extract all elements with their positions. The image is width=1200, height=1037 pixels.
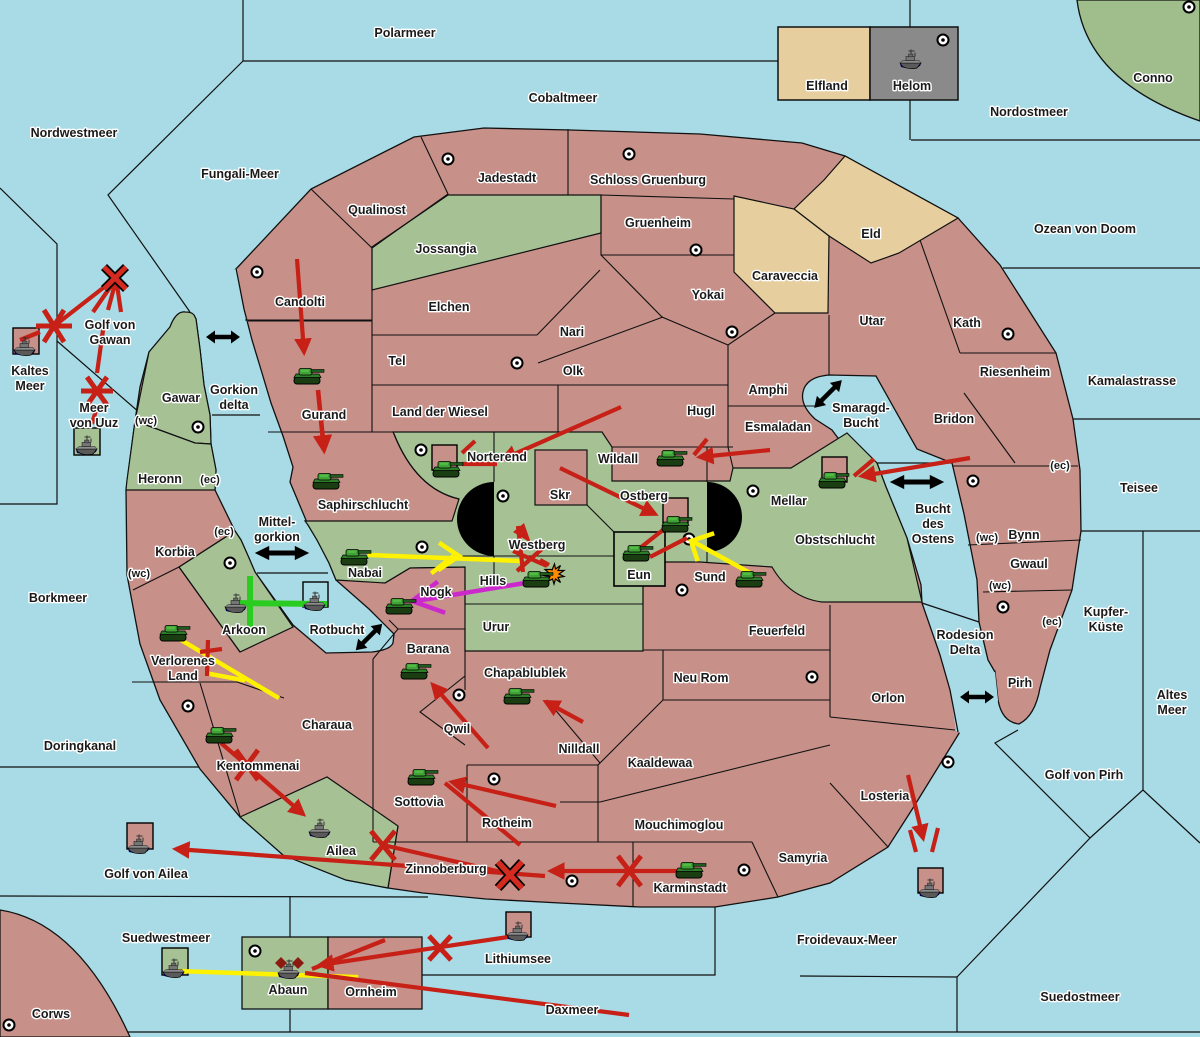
svg-text:Delta: Delta — [950, 643, 982, 657]
svg-text:Gruenheim: Gruenheim — [625, 216, 691, 230]
svg-text:Conno: Conno — [1133, 71, 1173, 85]
svg-text:Gwaul: Gwaul — [1010, 557, 1048, 571]
svg-text:Qualinost: Qualinost — [348, 203, 406, 217]
svg-text:Candolti: Candolti — [275, 295, 325, 309]
svg-text:Kath: Kath — [953, 316, 981, 330]
svg-text:Wildall: Wildall — [598, 452, 638, 466]
svg-text:Bucht: Bucht — [843, 416, 879, 430]
svg-text:Lithiumsee: Lithiumsee — [485, 952, 551, 966]
svg-text:delta: delta — [219, 398, 249, 412]
svg-text:Nordwestmeer: Nordwestmeer — [31, 126, 118, 140]
svg-text:Heronn: Heronn — [138, 472, 182, 486]
svg-text:Fungali-Meer: Fungali-Meer — [201, 167, 279, 181]
svg-text:Samyria: Samyria — [779, 851, 829, 865]
svg-text:Helom: Helom — [893, 79, 931, 93]
svg-text:Polarmeer: Polarmeer — [374, 26, 435, 40]
svg-text:Nari: Nari — [560, 325, 584, 339]
svg-text:Mouchimoglou: Mouchimoglou — [635, 818, 724, 832]
svg-text:Pirh: Pirh — [1008, 676, 1032, 690]
svg-text:(ec): (ec) — [200, 474, 220, 486]
svg-text:Mellar: Mellar — [771, 494, 807, 508]
svg-text:Froidevaux-Meer: Froidevaux-Meer — [797, 933, 897, 947]
svg-text:Esmaladan: Esmaladan — [745, 420, 811, 434]
svg-text:Elchen: Elchen — [429, 300, 470, 314]
svg-text:Gorkion: Gorkion — [210, 383, 258, 397]
svg-text:(ec): (ec) — [214, 526, 234, 538]
svg-text:Hugl: Hugl — [687, 404, 715, 418]
svg-text:Kaltes: Kaltes — [11, 364, 49, 378]
svg-text:Neu Rom: Neu Rom — [674, 671, 729, 685]
svg-text:Eun: Eun — [627, 568, 651, 582]
svg-text:Nabai: Nabai — [348, 566, 382, 580]
svg-text:Gawan: Gawan — [90, 333, 131, 347]
svg-text:Teisee: Teisee — [1120, 481, 1158, 495]
svg-text:Gurand: Gurand — [302, 408, 346, 422]
svg-text:Meer: Meer — [79, 401, 108, 415]
svg-text:Bynn: Bynn — [1008, 528, 1039, 542]
svg-text:von Uuz: von Uuz — [70, 416, 119, 430]
svg-text:Meer: Meer — [15, 379, 44, 393]
svg-text:Elfland: Elfland — [806, 79, 848, 93]
svg-text:Karminstadt: Karminstadt — [654, 881, 728, 895]
svg-text:Urur: Urur — [483, 620, 510, 634]
svg-text:Mittel-: Mittel- — [259, 515, 296, 529]
svg-text:Ailea: Ailea — [326, 844, 357, 858]
svg-text:Meer: Meer — [1157, 703, 1186, 717]
svg-text:Borkmeer: Borkmeer — [29, 591, 87, 605]
svg-text:Golf von Ailea: Golf von Ailea — [104, 867, 189, 881]
svg-text:(ec): (ec) — [1042, 616, 1062, 628]
svg-text:Losteria: Losteria — [861, 789, 911, 803]
svg-text:Ostberg: Ostberg — [620, 489, 668, 503]
svg-text:Suedwestmeer: Suedwestmeer — [122, 931, 210, 945]
svg-text:Zinnoberburg: Zinnoberburg — [405, 862, 486, 876]
svg-text:Chapablublek: Chapablublek — [484, 666, 566, 680]
svg-text:Sund: Sund — [694, 570, 725, 584]
svg-text:Tel: Tel — [388, 354, 405, 368]
svg-text:Yokai: Yokai — [692, 288, 724, 302]
svg-text:Charaua: Charaua — [302, 718, 353, 732]
svg-text:Smaragd-: Smaragd- — [832, 401, 890, 415]
svg-text:Olk: Olk — [563, 364, 583, 378]
svg-text:Obstschlucht: Obstschlucht — [795, 533, 876, 547]
svg-text:Kamalastrasse: Kamalastrasse — [1088, 374, 1176, 388]
svg-text:des: des — [922, 517, 944, 531]
svg-text:Bridon: Bridon — [934, 412, 974, 426]
svg-text:Corws: Corws — [32, 1007, 70, 1021]
svg-text:Westberg: Westberg — [509, 538, 566, 552]
svg-text:Skr: Skr — [550, 488, 570, 502]
svg-text:Bucht: Bucht — [915, 502, 951, 516]
svg-text:Kupfer-: Kupfer- — [1084, 605, 1128, 619]
svg-text:Nogk: Nogk — [420, 585, 451, 599]
svg-text:gorkion: gorkion — [254, 530, 300, 544]
svg-text:(wc): (wc) — [989, 580, 1011, 592]
svg-text:Daxmeer: Daxmeer — [546, 1003, 599, 1017]
svg-text:Utar: Utar — [859, 314, 884, 328]
svg-text:Saphirschlucht: Saphirschlucht — [318, 498, 409, 512]
svg-text:Nilldall: Nilldall — [559, 742, 600, 756]
svg-text:Ozean von Doom: Ozean von Doom — [1034, 222, 1136, 236]
svg-text:Rodesion: Rodesion — [937, 628, 994, 642]
svg-text:Ostens: Ostens — [912, 532, 954, 546]
svg-text:Küste: Küste — [1089, 620, 1124, 634]
svg-text:(wc): (wc) — [128, 568, 150, 580]
svg-text:Norterend: Norterend — [467, 450, 527, 464]
svg-text:Sottovia: Sottovia — [394, 795, 444, 809]
svg-text:Korbia: Korbia — [155, 545, 196, 559]
svg-text:Barana: Barana — [407, 642, 450, 656]
svg-text:Arkoon: Arkoon — [222, 623, 266, 637]
svg-text:Rotheim: Rotheim — [482, 816, 532, 830]
svg-text:Schloss Gruenburg: Schloss Gruenburg — [590, 173, 706, 187]
svg-text:Qwil: Qwil — [444, 722, 470, 736]
svg-text:(wc): (wc) — [135, 415, 157, 427]
svg-text:Golf von: Golf von — [85, 318, 136, 332]
svg-text:Doringkanal: Doringkanal — [44, 739, 116, 753]
svg-text:Land: Land — [168, 669, 198, 683]
svg-text:Kaaldewaa: Kaaldewaa — [628, 756, 694, 770]
svg-text:Cobaltmeer: Cobaltmeer — [529, 91, 598, 105]
svg-text:Riesenheim: Riesenheim — [980, 365, 1050, 379]
svg-text:Jossangia: Jossangia — [415, 242, 477, 256]
svg-text:Nordostmeer: Nordostmeer — [990, 105, 1068, 119]
svg-text:Amphi: Amphi — [749, 383, 788, 397]
svg-text:Hills: Hills — [480, 574, 506, 588]
svg-text:Ornheim: Ornheim — [345, 985, 396, 999]
svg-text:Suedostmeer: Suedostmeer — [1040, 990, 1119, 1004]
svg-text:Verlorenes: Verlorenes — [151, 654, 215, 668]
svg-text:Kentommenai: Kentommenai — [217, 759, 300, 773]
svg-text:Altes: Altes — [1157, 688, 1188, 702]
svg-text:Orlon: Orlon — [871, 691, 904, 705]
svg-text:(wc): (wc) — [976, 532, 998, 544]
svg-text:Gawar: Gawar — [162, 391, 200, 405]
svg-text:Feuerfeld: Feuerfeld — [749, 624, 805, 638]
svg-text:Abaun: Abaun — [269, 983, 308, 997]
svg-text:Jadestadt: Jadestadt — [478, 171, 537, 185]
svg-text:Land der Wiesel: Land der Wiesel — [392, 405, 488, 419]
svg-text:Golf von Pirh: Golf von Pirh — [1045, 768, 1123, 782]
svg-text:Rotbucht: Rotbucht — [310, 623, 366, 637]
svg-text:(ec): (ec) — [1050, 460, 1070, 472]
svg-text:Caraveccia: Caraveccia — [752, 269, 819, 283]
svg-text:Eld: Eld — [861, 227, 880, 241]
